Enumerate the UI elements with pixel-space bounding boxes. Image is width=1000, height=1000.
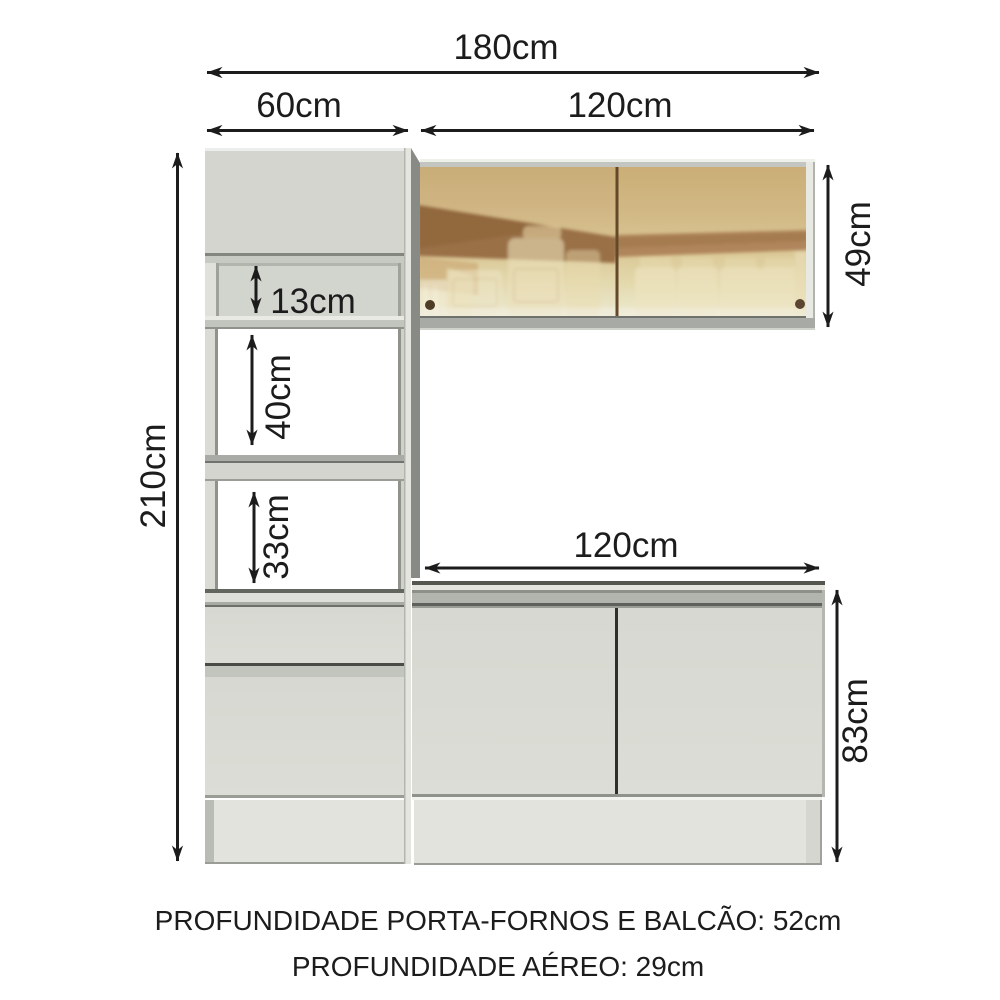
svg-text:60cm: 60cm (256, 86, 342, 125)
svg-text:180cm: 180cm (453, 28, 558, 67)
svg-text:83cm: 83cm (836, 678, 875, 764)
svg-text:PROFUNDIDADE PORTA-FORNOS E BA: PROFUNDIDADE PORTA-FORNOS E BALCÃO: 52cm (155, 905, 842, 936)
svg-text:40cm: 40cm (259, 354, 298, 440)
svg-text:120cm: 120cm (573, 526, 678, 565)
svg-text:PROFUNDIDADE AÉREO: 29cm: PROFUNDIDADE AÉREO: 29cm (292, 951, 704, 982)
svg-text:13cm: 13cm (270, 282, 356, 321)
svg-text:33cm: 33cm (257, 494, 296, 580)
svg-text:49cm: 49cm (839, 201, 878, 287)
svg-text:210cm: 210cm (134, 423, 173, 528)
svg-text:120cm: 120cm (567, 86, 672, 125)
